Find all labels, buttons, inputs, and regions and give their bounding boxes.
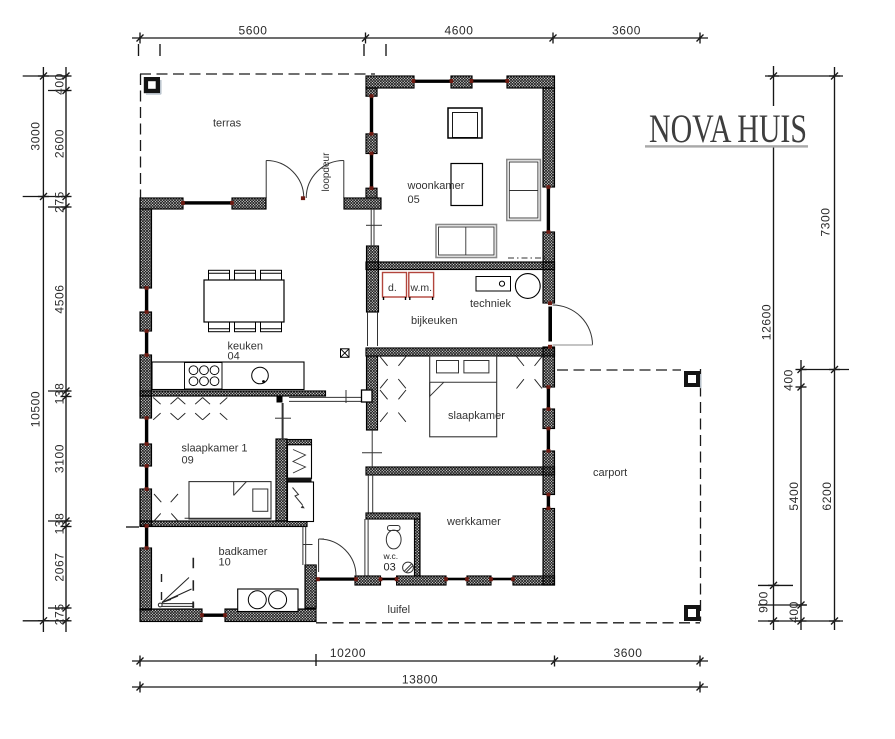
svg-text:400: 400 — [782, 369, 796, 391]
svg-text:138: 138 — [53, 383, 67, 405]
svg-text:2600: 2600 — [53, 129, 67, 158]
svg-text:3100: 3100 — [53, 444, 67, 473]
svg-text:275: 275 — [53, 603, 67, 625]
svg-text:4506: 4506 — [53, 284, 67, 313]
svg-text:10200: 10200 — [330, 646, 366, 660]
svg-text:werkkamer: werkkamer — [446, 516, 501, 528]
svg-text:13800: 13800 — [402, 673, 438, 687]
svg-text:03: 03 — [384, 562, 396, 574]
svg-text:275: 275 — [53, 191, 67, 213]
svg-text:04: 04 — [228, 351, 240, 363]
svg-text:400: 400 — [53, 73, 67, 95]
svg-text:900: 900 — [757, 591, 771, 613]
svg-text:5400: 5400 — [787, 481, 801, 510]
svg-text:techniek: techniek — [470, 298, 511, 310]
svg-text:09: 09 — [182, 455, 194, 467]
svg-text:woonkamer: woonkamer — [407, 180, 465, 192]
svg-text:3600: 3600 — [613, 646, 642, 660]
svg-text:w.c.: w.c. — [383, 551, 399, 561]
svg-text:3000: 3000 — [29, 121, 43, 150]
svg-text:luifel: luifel — [388, 604, 411, 616]
svg-text:terras: terras — [213, 118, 242, 130]
svg-text:4600: 4600 — [444, 24, 473, 38]
svg-text:12600: 12600 — [760, 304, 774, 340]
svg-text:slaapkamer 1: slaapkamer 1 — [182, 443, 248, 455]
svg-text:7300: 7300 — [819, 207, 833, 236]
svg-text:6200: 6200 — [820, 481, 834, 510]
svg-text:10: 10 — [219, 557, 231, 569]
svg-text:carport: carport — [593, 467, 627, 479]
svg-text:NOVA HUIS: NOVA HUIS — [649, 106, 807, 151]
svg-text:05: 05 — [408, 194, 420, 206]
svg-text:138: 138 — [53, 513, 67, 535]
svg-text:w.m.: w.m. — [410, 282, 433, 294]
svg-text:loopdeur: loopdeur — [321, 152, 332, 192]
svg-text:400: 400 — [787, 601, 801, 623]
svg-text:10500: 10500 — [29, 391, 43, 427]
svg-text:5600: 5600 — [238, 24, 267, 38]
svg-text:bijkeuken: bijkeuken — [411, 315, 457, 327]
svg-text:d.: d. — [388, 282, 397, 294]
svg-text:3600: 3600 — [612, 24, 641, 38]
svg-text:2067: 2067 — [53, 552, 67, 581]
